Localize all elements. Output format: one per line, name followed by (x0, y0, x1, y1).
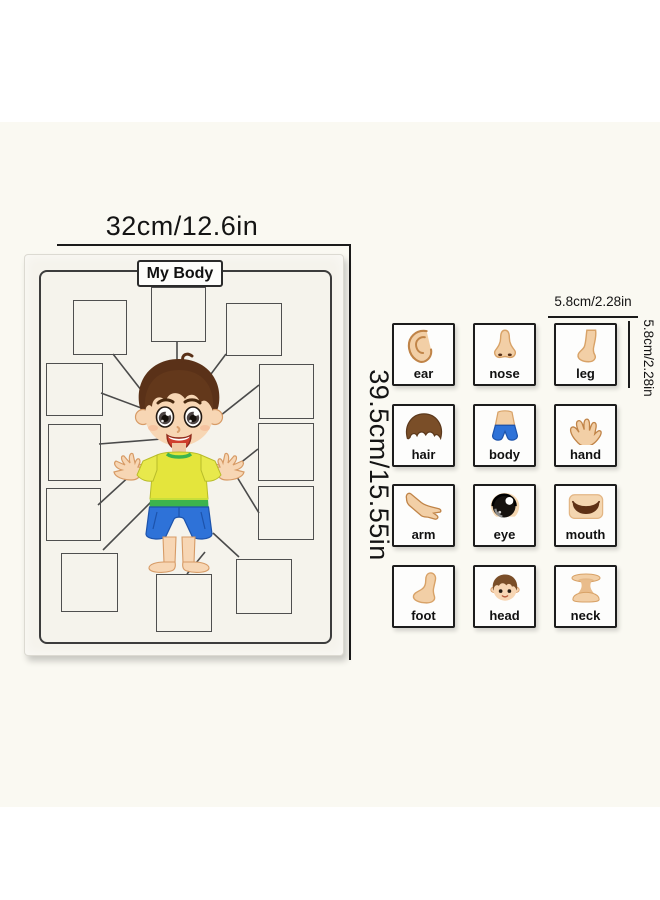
eye-icon (484, 489, 526, 525)
card-label: nose (489, 367, 519, 380)
flashcard-mouth: mouth (554, 484, 617, 547)
flashcard-arm: arm (392, 484, 455, 547)
answer-slot-9 (258, 486, 314, 540)
flashcard-hair: hair (392, 404, 455, 467)
card-label: eye (494, 528, 516, 541)
flashcard-ear: ear (392, 323, 455, 386)
board-width-dimension: 32cm/12.6in (82, 211, 282, 242)
card-width-line (548, 316, 638, 318)
hand-icon (565, 409, 607, 445)
head-icon (484, 570, 526, 606)
flashcard-hand: hand (554, 404, 617, 467)
flashcard-nose: nose (473, 323, 536, 386)
board-title: My Body (137, 260, 223, 287)
card-label: hair (412, 448, 436, 461)
card-label: neck (571, 609, 601, 622)
hair-icon (403, 409, 445, 445)
board-height-line (349, 244, 351, 660)
neck-icon (565, 570, 607, 606)
flashcard-body: body (473, 404, 536, 467)
flashcard-eye: eye (473, 484, 536, 547)
answer-slot-7 (259, 364, 314, 419)
leg-icon (565, 328, 607, 364)
foot-icon (403, 570, 445, 606)
arm-icon (403, 489, 445, 525)
answer-slot-8 (258, 423, 314, 481)
flashcard-leg: leg (554, 323, 617, 386)
answer-slot-4 (46, 363, 103, 416)
nose-icon (484, 328, 526, 364)
answer-slot-6 (46, 488, 101, 541)
card-height-line (628, 321, 630, 388)
flashcard-grid: ear nose leg hair (392, 323, 617, 628)
board-width-line (57, 244, 350, 246)
cartoon-boy-illustration (99, 351, 259, 586)
flashcard-neck: neck (554, 565, 617, 628)
flashcard-head: head (473, 565, 536, 628)
answer-slot-3 (226, 303, 282, 356)
card-label: mouth (566, 528, 606, 541)
card-width-dimension: 5.8cm/2.28in (544, 294, 642, 309)
ear-icon (403, 328, 445, 364)
card-label: head (489, 609, 519, 622)
product-photo: 32cm/12.6in 39.5cm/15.55in (0, 0, 660, 900)
card-label: foot (411, 609, 436, 622)
card-label: hand (570, 448, 601, 461)
card-height-dimension: 5.8cm/2.28in (641, 317, 656, 399)
card-label: ear (414, 367, 434, 380)
answer-slot-1 (73, 300, 127, 355)
my-body-board: My Body (24, 254, 344, 656)
answer-slot-5 (48, 424, 101, 481)
mouth-icon (565, 489, 607, 525)
answer-slot-2 (151, 287, 206, 342)
card-label: arm (412, 528, 436, 541)
card-label: leg (576, 367, 595, 380)
flashcard-foot: foot (392, 565, 455, 628)
card-label: body (489, 448, 520, 461)
board-height-dimension: 39.5cm/15.55in (363, 340, 394, 590)
body-icon (484, 409, 526, 445)
